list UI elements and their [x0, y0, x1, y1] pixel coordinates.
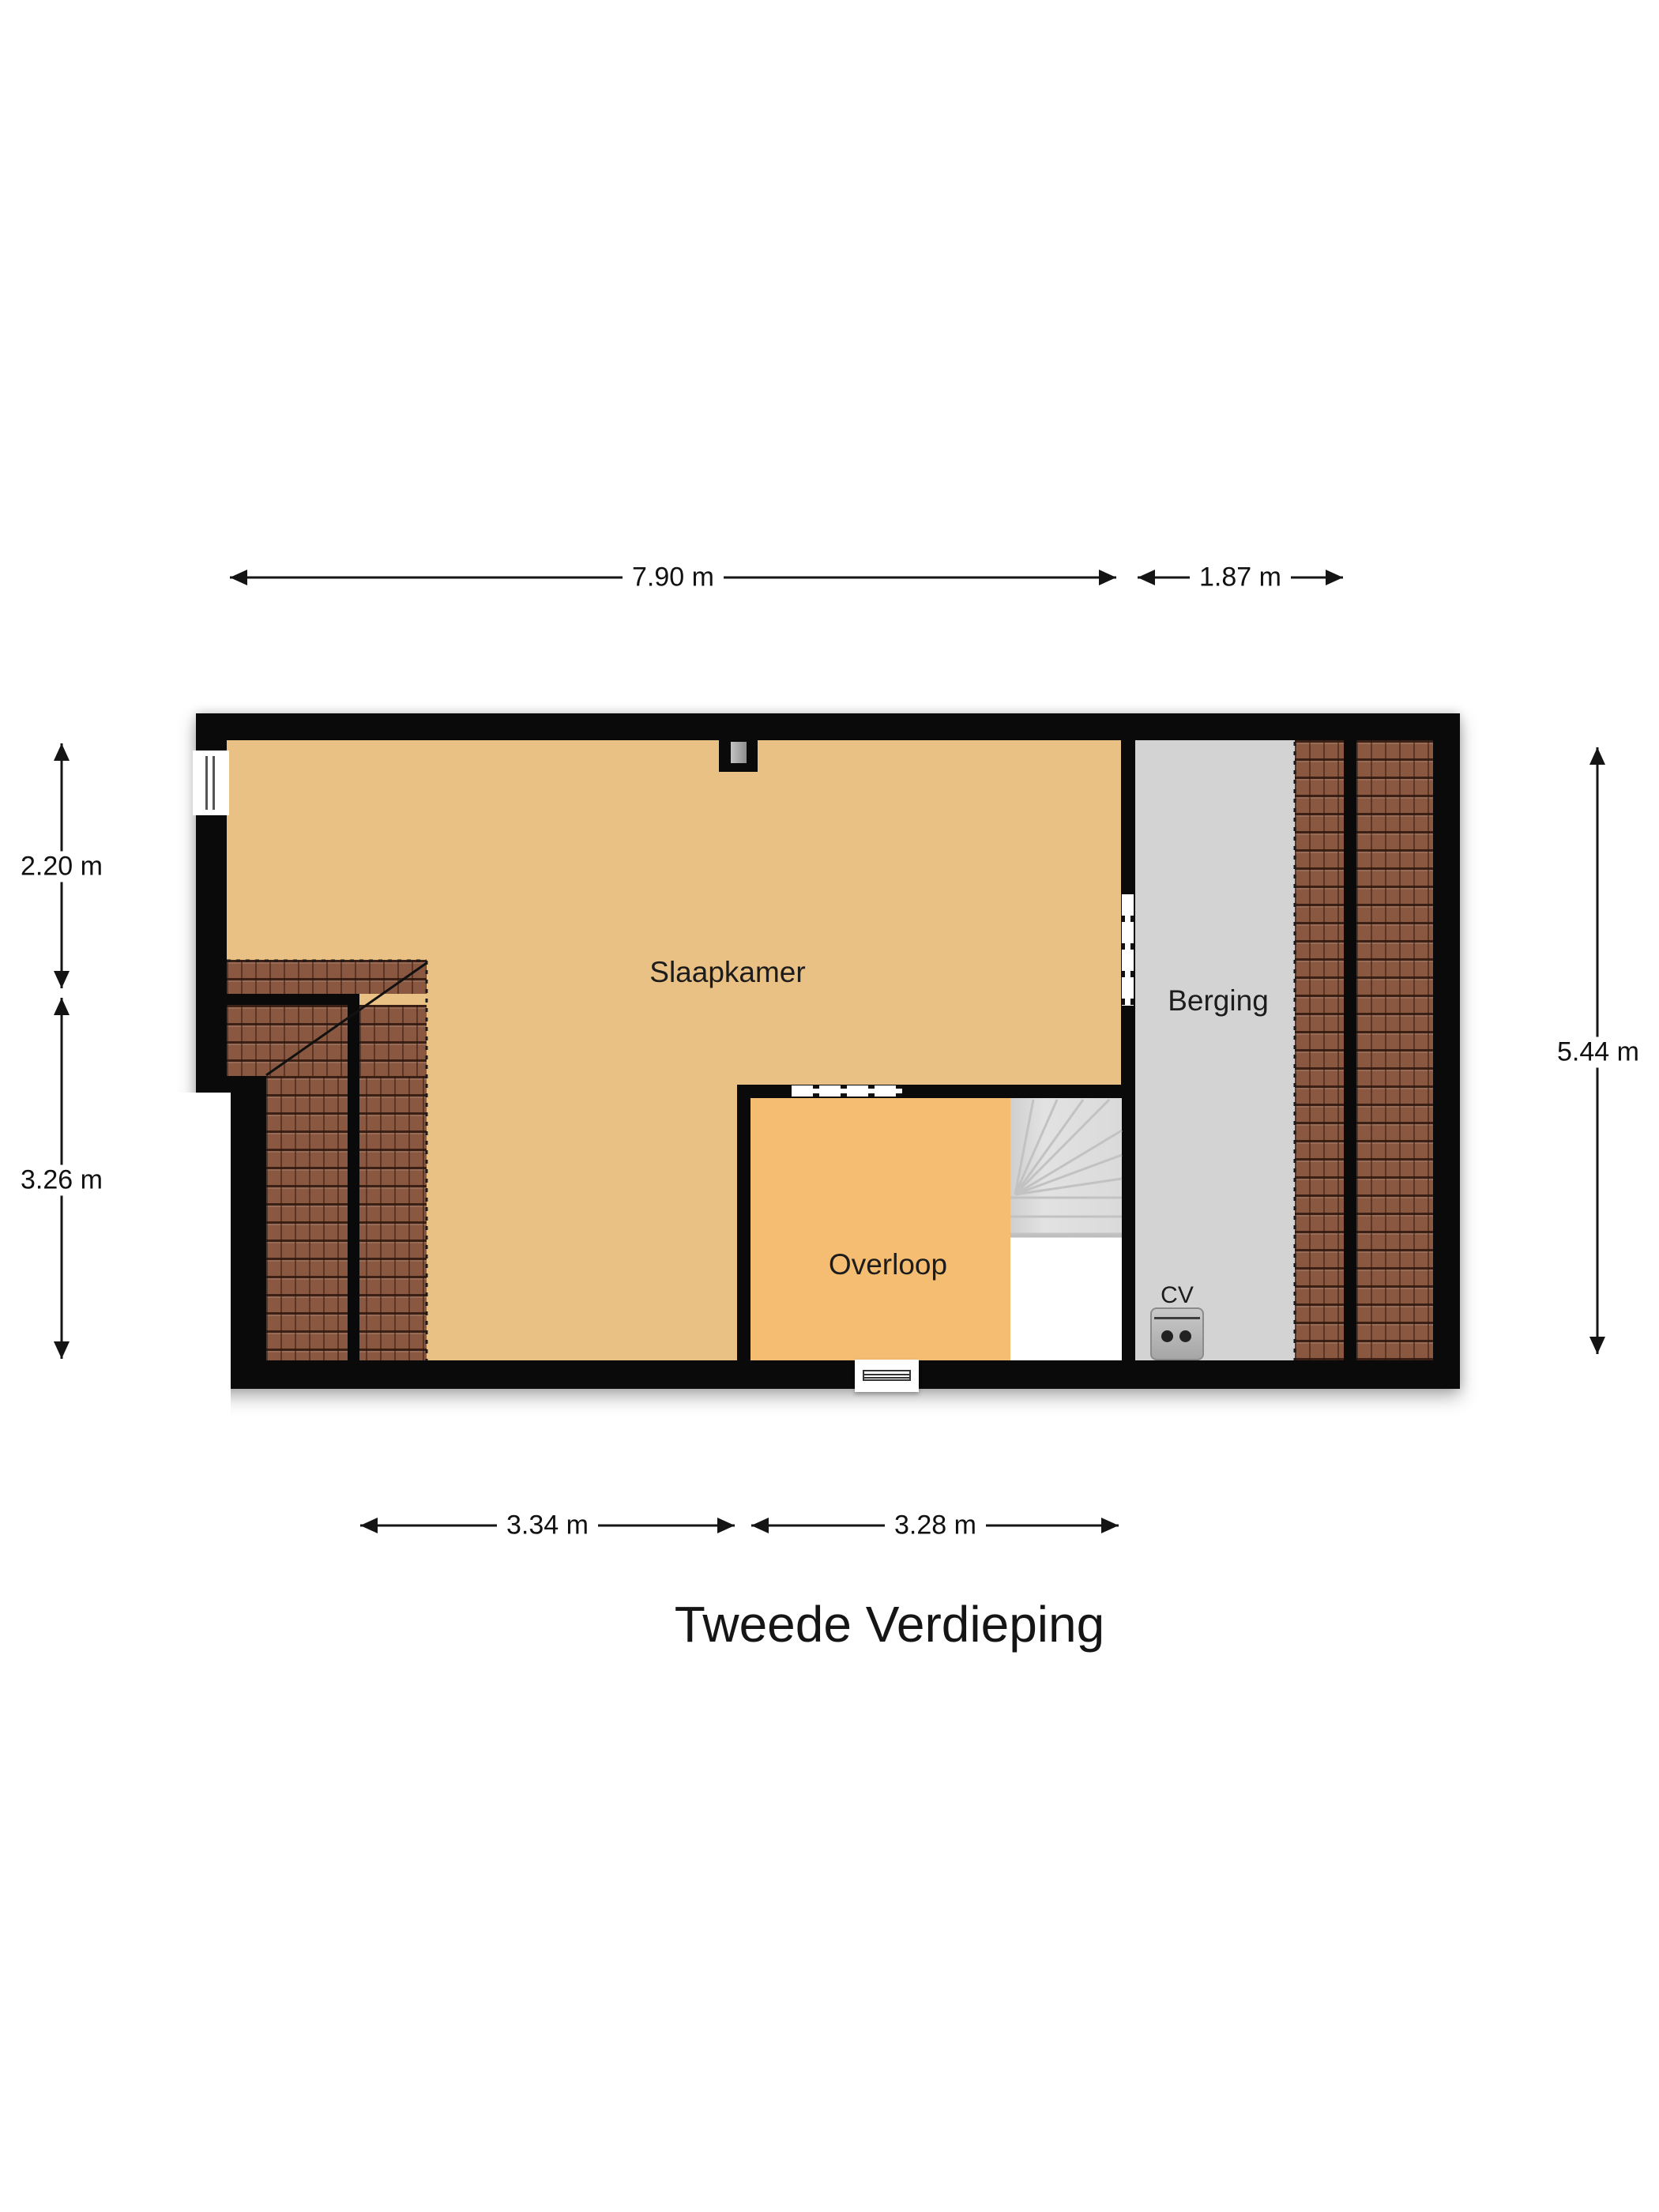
dimension-label-bottom-right: 3.28 m [885, 1510, 986, 1541]
window-slaapkamer-overloop [792, 1085, 902, 1097]
roof-slope-dormer-pocket [227, 1005, 348, 1076]
window-frame-bar [864, 1374, 909, 1375]
dimension-label-left-upper: 2.20 m [11, 852, 112, 882]
dimension-label-right-height: 5.44 m [1548, 1037, 1649, 1068]
dimension-label-top-berging: 1.87 m [1190, 562, 1291, 593]
cv-boiler-dot [1161, 1330, 1173, 1342]
floor-title: Tweede Verdieping [675, 1595, 1104, 1653]
roof-slope-bottom-left [266, 1076, 427, 1360]
window-frame-icon [863, 1370, 911, 1381]
stairs-void [1010, 1236, 1122, 1360]
window-frame-bar [864, 1377, 909, 1379]
window-glass-icon [205, 756, 215, 810]
wall-overloop-left [737, 1085, 750, 1360]
exterior-notch [141, 1093, 231, 1488]
room-overloop-floor [750, 1098, 1010, 1360]
window-frame-ticks [1130, 894, 1134, 1006]
cv-boiler-top-line [1154, 1317, 1200, 1319]
roof-slope-right-inner [1295, 740, 1344, 1360]
wall-dormer-vertical [348, 994, 359, 1360]
roof-slope-right-outer [1356, 740, 1433, 1360]
room-label-overloop: Overloop [829, 1248, 947, 1281]
window-frame-ticks [792, 1085, 902, 1089]
cv-boiler-icon [1150, 1307, 1204, 1360]
dimension-label-bottom-left: 3.34 m [497, 1510, 598, 1541]
dimension-label-left-lower: 3.26 m [11, 1165, 112, 1196]
dimension-label-top-width: 7.90 m [623, 562, 724, 593]
window-left-wall [193, 750, 229, 815]
chimney-icon [719, 740, 758, 772]
window-slaapkamer-berging [1122, 894, 1134, 1006]
window-bottom-wall [855, 1360, 919, 1392]
window-frame-ticks [1122, 894, 1125, 1006]
chimney-flue-icon [731, 742, 747, 763]
floorplan-canvas: Slaapkamer Berging Overloop CV 7.90 m 1.… [0, 0, 1659, 2212]
cv-label: CV [1161, 1282, 1194, 1309]
wall-dormer-horizontal [224, 994, 358, 1005]
stairs-treads [1010, 1098, 1122, 1236]
roof-slope-dormer-mid [359, 1005, 427, 1076]
roof-slope-dormer-top [227, 960, 427, 994]
cv-boiler-dot [1179, 1330, 1191, 1342]
room-berging-floor [1135, 740, 1295, 1360]
room-label-berging: Berging [1168, 984, 1269, 1018]
room-label-slaapkamer: Slaapkamer [649, 956, 805, 989]
window-frame-ticks [792, 1093, 902, 1097]
